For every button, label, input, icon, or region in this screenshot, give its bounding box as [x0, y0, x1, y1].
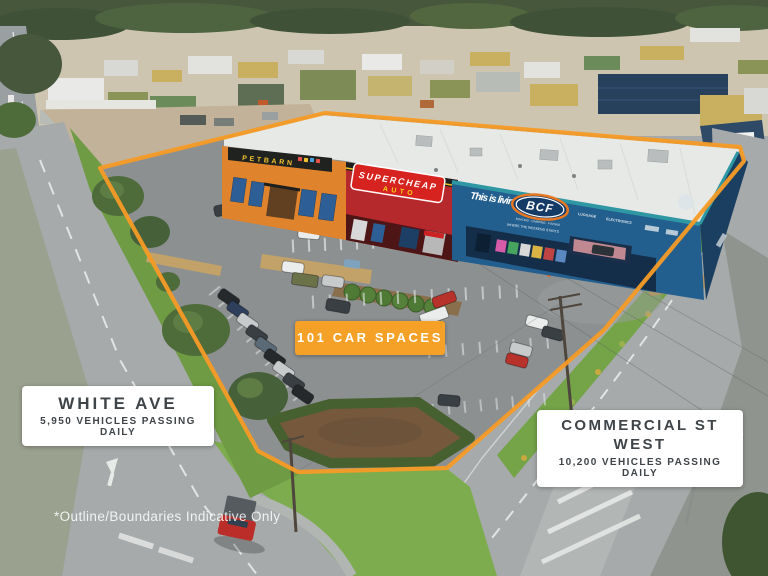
- commercial-st-label-box: COMMERCIAL ST WEST 10,200 VEHICLES PASSI…: [537, 410, 743, 487]
- commercial-st-traffic-count: 10,200 VEHICLES PASSING DAILY: [541, 457, 739, 479]
- white-ave-traffic-count: 5,950 VEHICLES PASSING DAILY: [26, 416, 210, 438]
- white-ave-label-box: WHITE AVE 5,950 VEHICLES PASSING DAILY: [22, 386, 214, 446]
- aerial-property-photo: PETBARN SUPERCHEAP AUTO: [0, 0, 768, 576]
- white-ave-street-name: WHITE AVE: [26, 393, 210, 414]
- boundary-disclaimer-text: *Outline/Boundaries Indicative Only: [54, 509, 280, 524]
- aerial-scene: PETBARN SUPERCHEAP AUTO: [0, 0, 768, 576]
- commercial-st-street-name: COMMERCIAL ST WEST: [541, 417, 739, 455]
- car-spaces-badge: 101 CAR SPACES: [295, 321, 445, 355]
